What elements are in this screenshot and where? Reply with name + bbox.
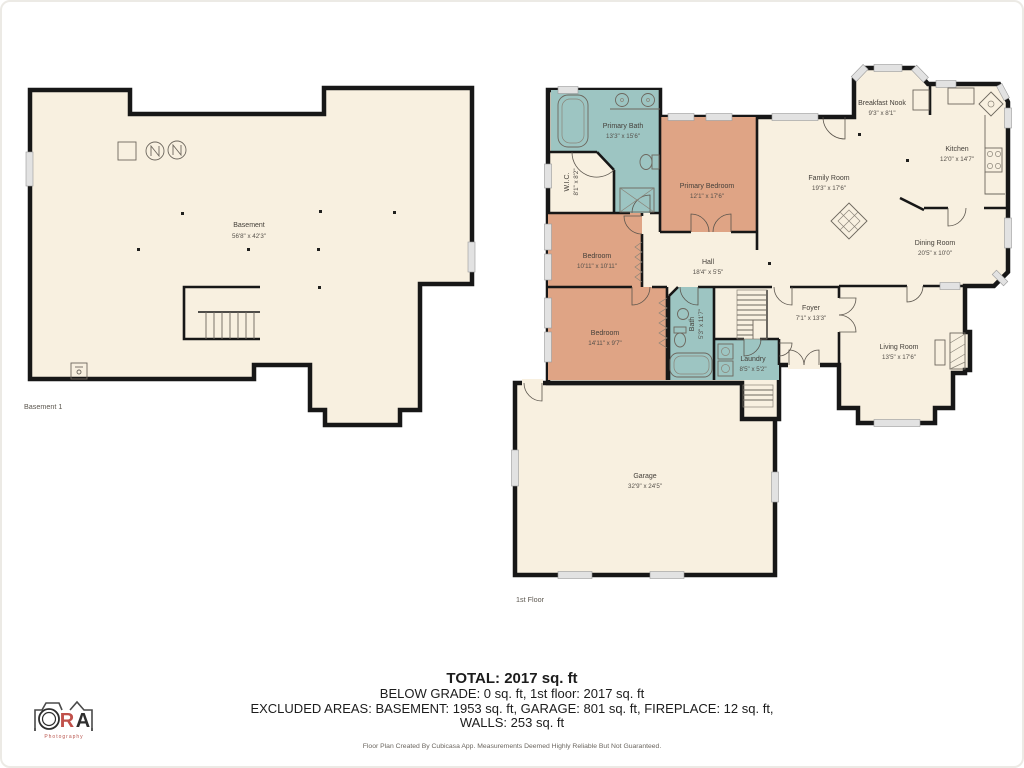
summary-excluded: EXCLUDED AREAS: BASEMENT: 1953 sq. ft, G… (2, 702, 1022, 717)
room-label-dining-room: Dining Room (915, 240, 956, 247)
room-dims-hall: 18'4" x 5'5" (693, 269, 724, 276)
room-dims-basement: 56'8" x 42'3" (232, 233, 266, 240)
disclaimer-text: Floor Plan Created By Cubicasa App. Meas… (2, 743, 1022, 750)
room-dims-breakfast-nook: 9'3" x 8'1" (868, 110, 895, 117)
room-label-family-room: Family Room (808, 175, 849, 182)
area-summary: TOTAL: 2017 sq. ft BELOW GRADE: 0 sq. ft… (2, 670, 1022, 731)
logo-subtext: Photography (44, 734, 83, 740)
basement-floor-title: Basement 1 (24, 402, 62, 411)
room-label-living-room: Living Room (880, 344, 919, 351)
basement-outline (30, 88, 472, 425)
summary-walls: WALLS: 253 sq. ft (2, 716, 1022, 731)
room-dims-bath: 5'3" x 11'7" (698, 309, 705, 339)
summary-below-grade: BELOW GRADE: 0 sq. ft, 1st floor: 2017 s… (2, 687, 1022, 702)
room-label-laundry: Laundry (740, 356, 766, 363)
room-dims-living-room: 13'5" x 17'6" (882, 354, 916, 361)
room-dims-dining-room: 20'5" x 10'0" (918, 250, 952, 257)
room-bedroom-a (548, 213, 642, 287)
basement-plan: Basement 56'8" x 42'3" Basement 1 (24, 88, 475, 425)
room-label-hall: Hall (702, 259, 715, 266)
room-label-bedroom-b: Bedroom (591, 330, 620, 337)
room-dims-foyer: 7'1" x 13'3" (796, 315, 827, 322)
room-dims-bedroom-a: 10'11" x 10'11" (577, 263, 617, 270)
room-label-bath: Bath (689, 317, 696, 332)
room-label-wic: W.I.C. (564, 172, 571, 191)
room-label-bedroom-a: Bedroom (583, 253, 612, 260)
first-floor-plan: Primary Bath 13'3" x 15'6" W.I.C. 8'1" x… (512, 64, 1012, 604)
room-dims-kitchen: 12'0" x 14'7" (940, 156, 974, 163)
floor-plan-canvas: Basement 56'8" x 42'3" Basement 1 (2, 2, 1024, 768)
room-dims-wic: 8'1" x 8'2" (573, 168, 580, 195)
room-dims-primary-bedroom: 12'1" x 17'6" (690, 193, 724, 200)
room-label-primary-bath: Primary Bath (603, 123, 644, 130)
room-dims-family-room: 19'3" x 17'6" (812, 185, 846, 192)
room-label-kitchen: Kitchen (945, 146, 968, 153)
room-dims-garage: 32'9" x 24'5" (628, 483, 662, 490)
room-dims-primary-bath: 13'3" x 15'6" (606, 133, 640, 140)
room-label-primary-bedroom: Primary Bedroom (680, 183, 735, 190)
garage-side-door-gap (522, 379, 543, 387)
first-floor-title: 1st Floor (516, 595, 545, 604)
room-primary-bedroom (660, 117, 757, 232)
room-dims-bedroom-b: 14'11" x 9'7" (588, 340, 621, 347)
summary-total: TOTAL: 2017 sq. ft (2, 670, 1022, 687)
room-label-breakfast-nook: Breakfast Nook (858, 100, 906, 107)
room-label-basement: Basement (233, 222, 265, 229)
room-bath (669, 287, 714, 380)
floor-plan-page: Basement 56'8" x 42'3" Basement 1 (0, 0, 1024, 768)
room-label-foyer: Foyer (802, 305, 821, 312)
room-dims-laundry: 8'5" x 5'2" (739, 366, 766, 373)
room-label-garage: Garage (633, 473, 656, 480)
